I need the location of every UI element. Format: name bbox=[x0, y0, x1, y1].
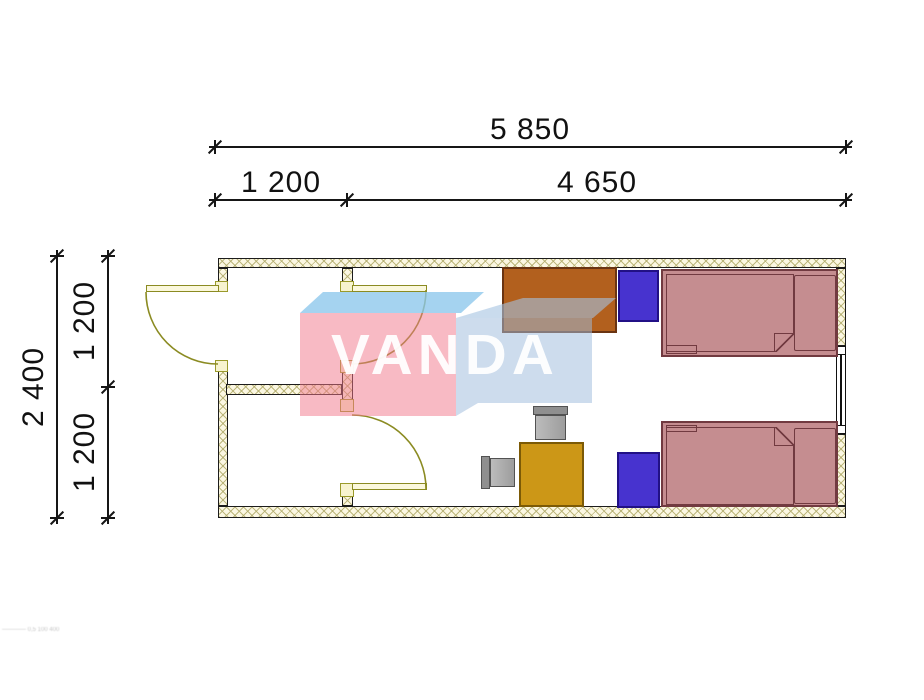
watermark-top-face bbox=[300, 292, 484, 313]
watermark-text: VANDA bbox=[331, 327, 606, 384]
floor-plan-canvas: 5 850 1 200 4 650 2 400 1 200 1 200 bbox=[0, 0, 924, 700]
entry-door-arc bbox=[146, 292, 218, 364]
lower-door-arc bbox=[352, 415, 426, 489]
